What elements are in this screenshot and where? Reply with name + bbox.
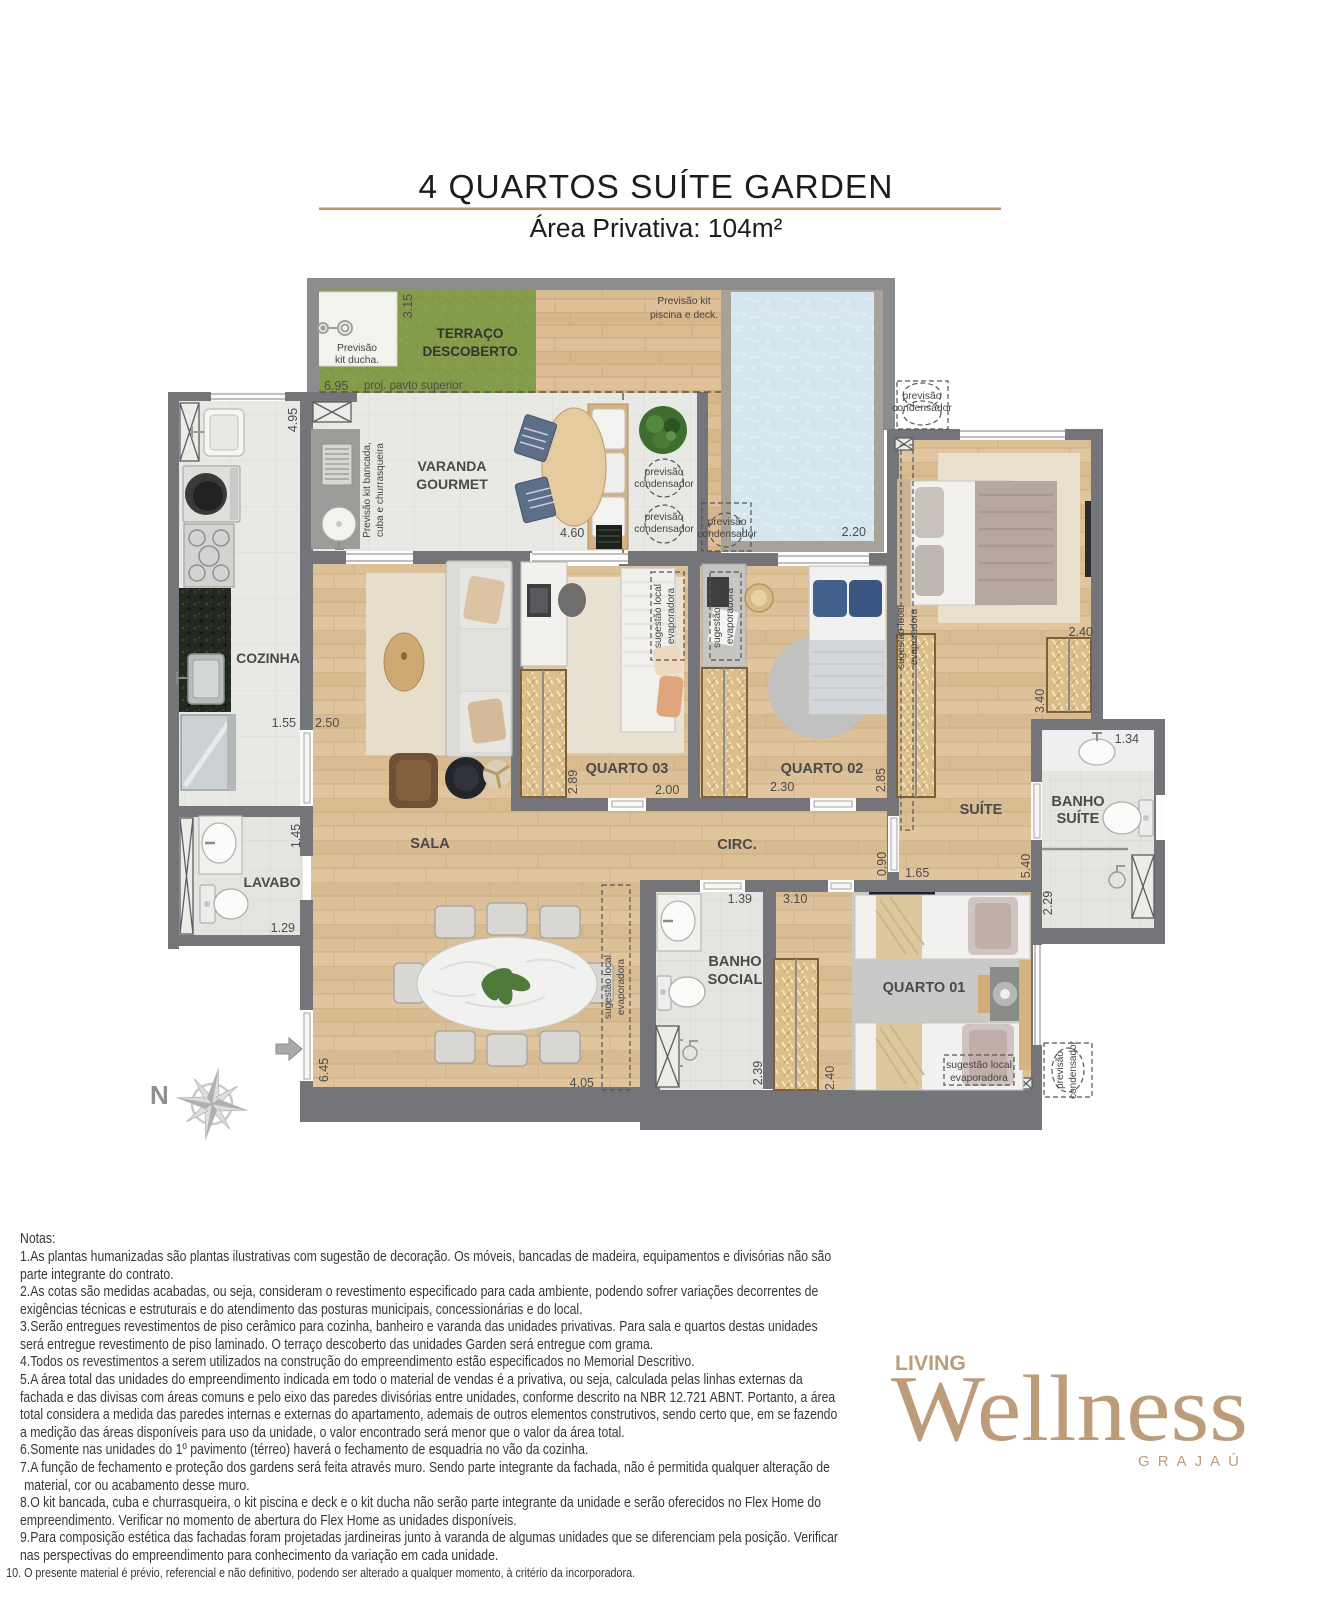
svg-text:3.Serão entregues revestimento: 3.Serão entregues revestimentos de piso … (20, 1318, 818, 1334)
svg-text:nas perspectivas do empreendim: nas perspectivas do empreendimento para … (20, 1547, 498, 1563)
svg-text:SUÍTE: SUÍTE (1057, 810, 1100, 827)
svg-text:condensador: condensador (634, 479, 694, 490)
svg-text:evaporadora: evaporadora (725, 587, 736, 644)
svg-text:sugestão local: sugestão local (603, 955, 614, 1019)
svg-text:4.95: 4.95 (286, 408, 300, 432)
svg-text:4.60: 4.60 (560, 526, 584, 540)
svg-text:6.Somente nas unidades do 1º p: 6.Somente nas unidades do 1º pavimento (… (20, 1441, 588, 1457)
svg-text:Notas:: Notas: (20, 1230, 55, 1246)
svg-text:6.95: 6.95 (324, 379, 348, 393)
svg-text:exigências técnicas e estrutur: exigências técnicas e estruturais e do a… (20, 1301, 583, 1317)
svg-text:piscina e deck.: piscina e deck. (650, 310, 718, 321)
svg-text:N: N (150, 1080, 169, 1110)
svg-text:COZINHA: COZINHA (236, 650, 300, 666)
svg-text:BANHO: BANHO (708, 954, 761, 970)
svg-text:kit ducha.: kit ducha. (335, 355, 379, 366)
svg-text:7.A função de fechamento e pro: 7.A função de fechamento e proteção dos … (20, 1459, 830, 1475)
svg-text:GOURMET: GOURMET (416, 476, 488, 492)
svg-text:1.45: 1.45 (289, 824, 303, 848)
svg-text:GRAJAÚ: GRAJAÚ (1138, 1453, 1247, 1470)
svg-text:3.15: 3.15 (401, 294, 415, 318)
svg-text:Previsão kit bancada,: Previsão kit bancada, (362, 442, 373, 538)
svg-text:condensador: condensador (1068, 1040, 1079, 1098)
svg-text:1.29: 1.29 (271, 921, 295, 935)
svg-text:condensador: condensador (892, 403, 952, 414)
svg-text:fachada e das divisas com área: fachada e das divisas com áreas comuns e… (20, 1389, 836, 1405)
svg-text:TERRAÇO: TERRAÇO (437, 326, 504, 341)
svg-text:evaporadora: evaporadora (950, 1073, 1008, 1084)
svg-text:LAVABO: LAVABO (243, 874, 300, 890)
svg-text:3.40: 3.40 (1033, 689, 1047, 713)
svg-text:sugestão local: sugestão local (712, 584, 723, 648)
svg-text:previsão: previsão (645, 512, 684, 523)
svg-text:1.34: 1.34 (1115, 732, 1139, 746)
svg-text:empreendimento. Verificar no m: empreendimento. Verificar no momento de … (20, 1512, 517, 1528)
svg-text:1.65: 1.65 (905, 866, 929, 880)
svg-text:evaporadora: evaporadora (616, 958, 627, 1015)
svg-text:SUÍTE: SUÍTE (960, 801, 1003, 818)
svg-text:10. O presente material é prév: 10. O presente material é prévio, refere… (6, 1565, 635, 1580)
svg-text:1.As plantas humanizadas são p: 1.As plantas humanizadas são plantas ilu… (20, 1248, 831, 1264)
svg-text:8.O kit bancada, cuba e churra: 8.O kit bancada, cuba e churrasqueira, o… (20, 1494, 821, 1510)
svg-text:2.30: 2.30 (770, 780, 794, 794)
svg-text:total considera a medida das p: total considera a medida das paredes int… (20, 1406, 838, 1422)
svg-text:2.89: 2.89 (566, 770, 580, 794)
svg-text:a medição das áreas disponívei: a medição das áreas disponíveis para uso… (20, 1424, 625, 1440)
svg-text:9.Para composição estética das: 9.Para composição estética das fachadas … (20, 1529, 838, 1545)
svg-text:previsão: previsão (903, 391, 942, 402)
svg-text:6.45: 6.45 (317, 1058, 331, 1082)
svg-text:2.As cotas são medidas acabada: 2.As cotas são medidas acabadas, ou seja… (20, 1283, 818, 1299)
svg-text:evaporadora: evaporadora (666, 587, 677, 644)
svg-text:2.40: 2.40 (823, 1066, 837, 1090)
svg-text:cuba e churrasqueira: cuba e churrasqueira (375, 443, 386, 537)
svg-text:VARANDA: VARANDA (418, 458, 487, 474)
svg-text:5.40: 5.40 (1019, 854, 1033, 878)
svg-text:previsão: previsão (645, 467, 684, 478)
svg-text:SALA: SALA (410, 836, 450, 852)
svg-text:BANHO: BANHO (1051, 794, 1104, 810)
svg-text:DESCOBERTO: DESCOBERTO (422, 344, 517, 359)
svg-text:parte integrante do contrato.: parte integrante do contrato. (20, 1266, 174, 1282)
svg-text:Wellness: Wellness (891, 1357, 1248, 1461)
svg-text:4 QUARTOS SUÍTE GARDEN: 4 QUARTOS SUÍTE GARDEN (419, 169, 894, 206)
svg-text:será entregue revestimento de: será entregue revestimento de piso lamin… (20, 1336, 653, 1352)
svg-text:material, cor ou acabamento de: material, cor ou acabamento desse muro. (24, 1477, 250, 1493)
svg-text:sugestão local: sugestão local (946, 1060, 1012, 1071)
svg-text:QUARTO 02: QUARTO 02 (781, 761, 864, 777)
svg-text:2.20: 2.20 (842, 525, 866, 539)
svg-text:2.40: 2.40 (1069, 625, 1093, 639)
svg-text:Previsão kit: Previsão kit (657, 296, 710, 307)
svg-text:condensador: condensador (697, 529, 757, 540)
svg-text:4.05: 4.05 (570, 1076, 594, 1090)
svg-text:5.A área total das unidades do: 5.A área total das unidades do empreendi… (20, 1371, 803, 1387)
svg-text:SOCIAL: SOCIAL (708, 972, 763, 988)
svg-text:2.85: 2.85 (874, 768, 888, 792)
svg-text:QUARTO 03: QUARTO 03 (586, 761, 669, 777)
svg-text:proj. pavto superior: proj. pavto superior (364, 380, 463, 392)
svg-text:2.39: 2.39 (751, 1061, 765, 1085)
svg-text:CIRC.: CIRC. (717, 837, 756, 853)
svg-text:2.29: 2.29 (1041, 891, 1055, 915)
svg-text:4.Todos os revestimentos a ser: 4.Todos os revestimentos a serem utiliza… (20, 1353, 695, 1369)
svg-text:Previsão: Previsão (337, 343, 377, 354)
svg-text:Área Privativa: 104m²: Área Privativa: 104m² (530, 213, 783, 243)
svg-text:3.10: 3.10 (783, 892, 807, 906)
svg-text:1.55: 1.55 (272, 716, 296, 730)
svg-text:0.90: 0.90 (875, 852, 889, 876)
svg-text:previsão: previsão (1055, 1051, 1066, 1089)
svg-text:sugestão local: sugestão local (653, 584, 664, 648)
svg-text:QUARTO 01: QUARTO 01 (883, 980, 966, 996)
svg-text:evaporadora: evaporadora (909, 608, 920, 665)
svg-text:sugestão local: sugestão local (896, 605, 907, 669)
svg-text:1.39: 1.39 (728, 892, 752, 906)
svg-text:2.00: 2.00 (655, 783, 679, 797)
svg-text:condensador: condensador (634, 524, 694, 535)
svg-text:2.50: 2.50 (315, 716, 339, 730)
